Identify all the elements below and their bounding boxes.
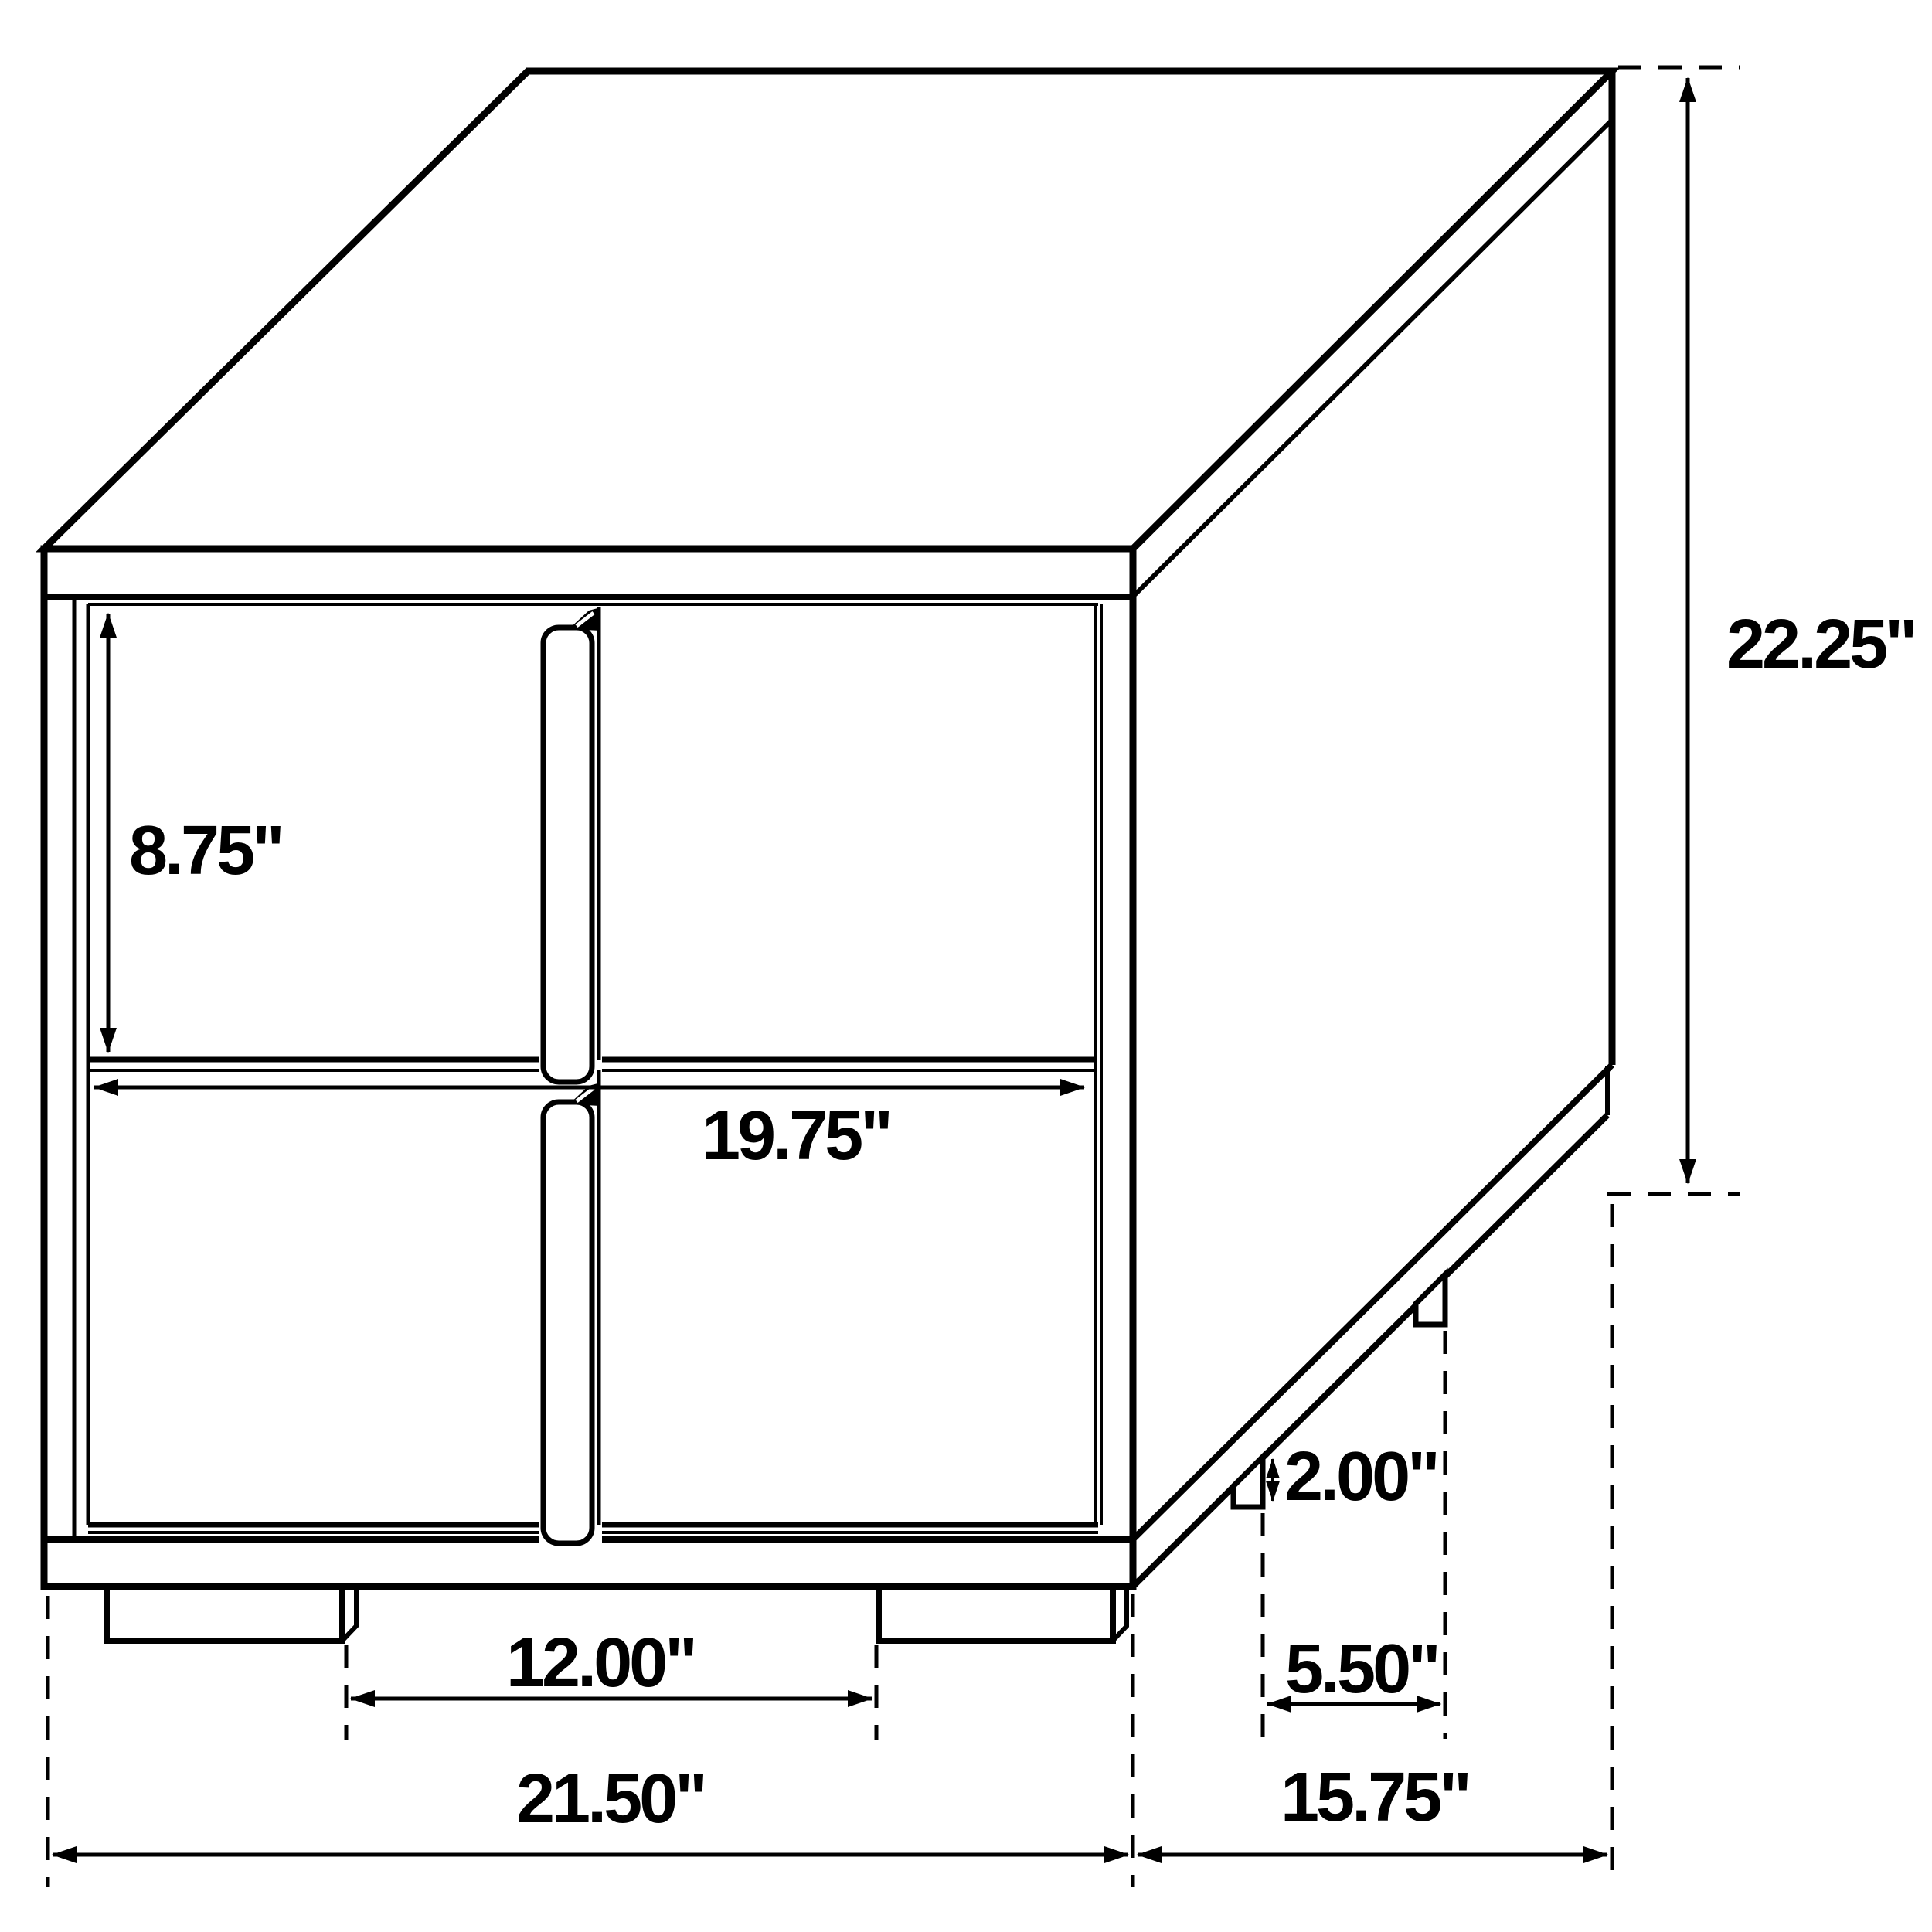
dim-drawer-height: 8.75" xyxy=(108,614,282,1052)
dim-overall-depth-label: 15.75" xyxy=(1281,1759,1469,1836)
side-rear-foot xyxy=(1416,1274,1445,1325)
top-face xyxy=(44,71,1612,549)
front-left-foot xyxy=(107,1587,356,1641)
dim-overall-width-label: 21.50" xyxy=(516,1760,705,1838)
dimension-diagram-page: 8.75" 19.75" 22.25" 2.00" 5.50" 12.00" 2… xyxy=(0,0,1932,1932)
front-right-foot-face xyxy=(879,1587,1113,1641)
dim-overall-height-label: 22.25" xyxy=(1726,606,1915,683)
front-left-foot-face xyxy=(107,1587,342,1641)
dim-overall-depth: 15.75" xyxy=(1138,1204,1612,1887)
dim-drawer-width-label: 19.75" xyxy=(702,1097,890,1175)
dim-overall-height: 22.25" xyxy=(1607,67,1915,1194)
top-slab-side-edge xyxy=(1133,120,1612,597)
side-rail-bottom-edge xyxy=(1133,1115,1607,1587)
dim-foot-height: 2.00" xyxy=(1273,1438,1437,1515)
bottom-drawer-handle xyxy=(543,1083,600,1543)
dim-drawer-height-label: 8.75" xyxy=(129,812,282,889)
top-handle-bar xyxy=(543,628,592,1082)
front-right-foot xyxy=(879,1587,1127,1641)
nightstand-dimension-drawing: 8.75" 19.75" 22.25" 2.00" 5.50" 12.00" 2… xyxy=(0,0,1932,1932)
dim-foot-height-label: 2.00" xyxy=(1284,1438,1437,1515)
dim-front-foot-gap: 12.00" xyxy=(346,1624,876,1740)
bottom-handle-bar xyxy=(543,1102,592,1543)
dim-side-foot-gap-label: 5.50" xyxy=(1285,1631,1438,1708)
top-drawer-handle xyxy=(543,607,600,1082)
side-near-foot xyxy=(1233,1457,1263,1507)
dim-front-foot-gap-label: 12.00" xyxy=(506,1624,695,1702)
dim-side-foot-gap: 5.50" xyxy=(1263,1331,1445,1739)
